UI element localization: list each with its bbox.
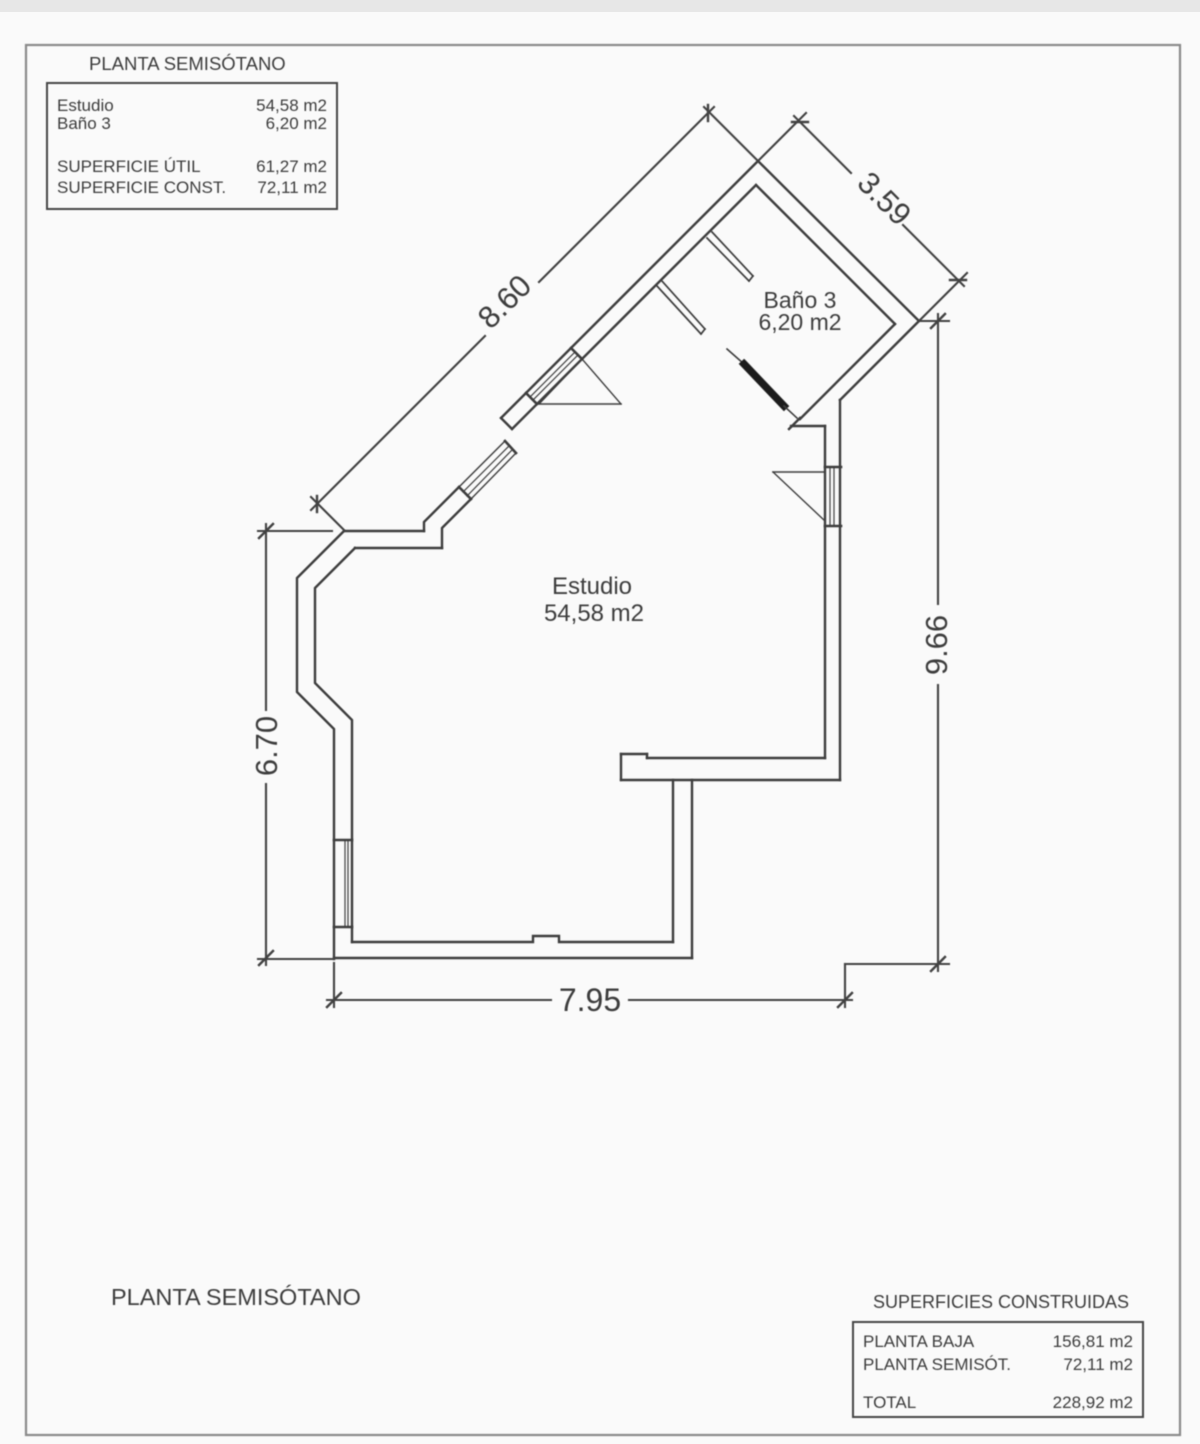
svg-text:7.95: 7.95 (559, 982, 621, 1018)
svg-text:228,92 m2: 228,92 m2 (1053, 1393, 1133, 1412)
svg-text:PLANTA BAJA: PLANTA BAJA (863, 1332, 975, 1351)
svg-text:PLANTA SEMISÓTANO: PLANTA SEMISÓTANO (111, 1284, 361, 1310)
svg-text:Estudio: Estudio (552, 573, 632, 600)
svg-text:6.70: 6.70 (249, 716, 284, 776)
svg-text:PLANTA SEMISÓTANO: PLANTA SEMISÓTANO (89, 53, 286, 74)
svg-text:9.66: 9.66 (919, 615, 954, 675)
svg-text:72,11 m2: 72,11 m2 (257, 178, 327, 197)
svg-text:Baño 3: Baño 3 (57, 114, 111, 133)
svg-text:6,20 m2: 6,20 m2 (758, 309, 841, 335)
svg-text:PLANTA SEMISÓT.: PLANTA SEMISÓT. (863, 1355, 1011, 1374)
svg-text:72,11 m2: 72,11 m2 (1063, 1355, 1133, 1374)
svg-text:54,58 m2: 54,58 m2 (544, 600, 644, 627)
svg-text:61,27 m2: 61,27 m2 (256, 157, 327, 176)
svg-text:SUPERFICIE CONST.: SUPERFICIE CONST. (57, 178, 226, 197)
svg-text:54,58 m2: 54,58 m2 (256, 96, 327, 115)
svg-text:156,81 m2: 156,81 m2 (1053, 1332, 1133, 1351)
svg-text:6,20 m2: 6,20 m2 (266, 114, 327, 133)
svg-text:3.59: 3.59 (851, 165, 918, 232)
svg-text:SUPERFICIE ÚTIL: SUPERFICIE ÚTIL (57, 157, 201, 176)
svg-text:Estudio: Estudio (57, 96, 114, 115)
svg-text:TOTAL: TOTAL (863, 1393, 916, 1412)
svg-text:8.60: 8.60 (471, 268, 538, 335)
svg-text:SUPERFICIES CONSTRUIDAS: SUPERFICIES CONSTRUIDAS (873, 1292, 1129, 1312)
